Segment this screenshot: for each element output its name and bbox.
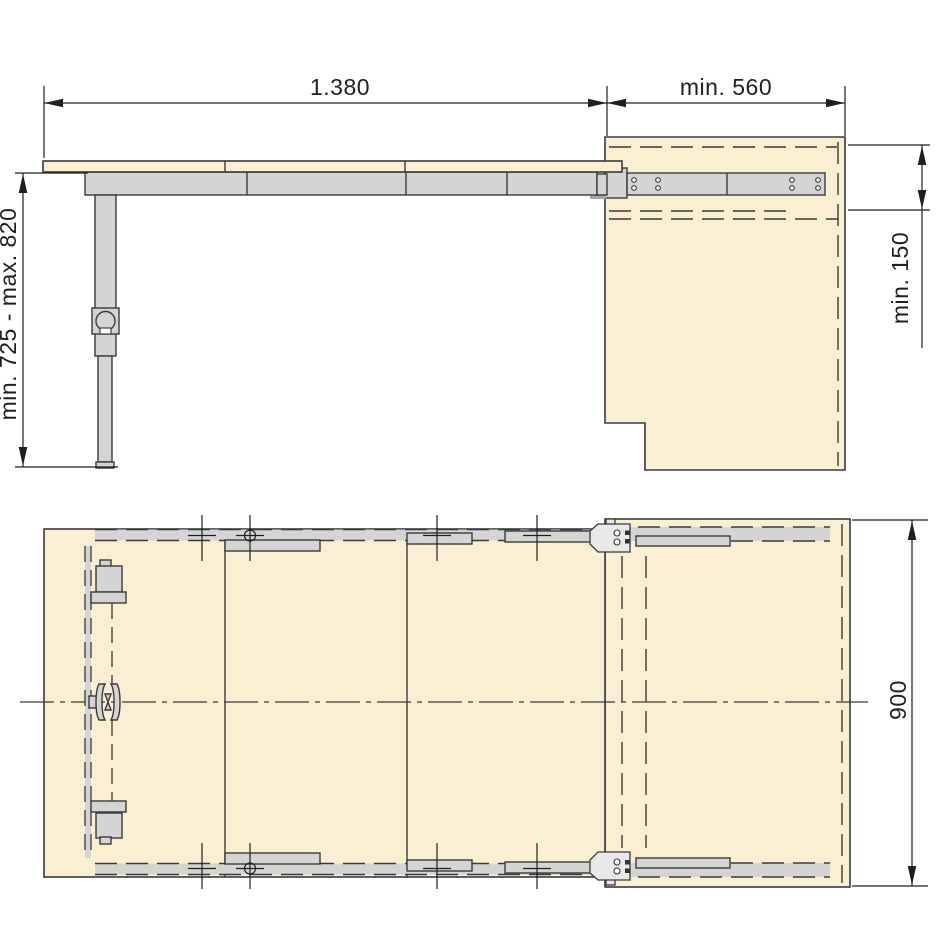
dimension-table-depth: 900 [852, 520, 928, 886]
cabinet-mounted-rail [605, 168, 825, 198]
technical-drawing-page: 1.380 min. 560 min. 725 - max. 820 min. … [0, 0, 940, 940]
rail-front-bracket-plan-bottom [590, 852, 630, 880]
dim-label-cabinet-depth: min. 560 [680, 74, 772, 100]
cabinet-plan [605, 519, 850, 887]
dim-label-rail-zone-height: min. 150 [887, 232, 913, 324]
rail-front-bracket-plan [590, 524, 630, 552]
tabletop-plan [44, 529, 605, 877]
dimension-cabinet-depth: min. 560 [607, 74, 845, 136]
dim-label-height-range: min. 725 - max. 820 [0, 208, 21, 421]
dim-label-table-depth: 900 [885, 680, 911, 720]
side-view: 1.380 min. 560 min. 725 - max. 820 min. … [0, 74, 930, 470]
dimension-pull-out-length: 1.380 [44, 74, 607, 158]
cabinet-side-view [605, 137, 845, 470]
table-leg-side-view [92, 195, 119, 468]
leg-mount-top [96, 566, 122, 592]
leg-mount-bottom [96, 813, 122, 838]
leg-lower-column [98, 356, 112, 462]
dim-label-pull-out-length: 1.380 [310, 74, 370, 100]
telescopic-frame [85, 172, 607, 195]
plan-view: 900 [20, 515, 928, 889]
pullout-table-drawing: 1.380 min. 560 min. 725 - max. 820 min. … [0, 0, 940, 940]
table-side-view [43, 161, 622, 199]
tabletop-side [43, 161, 622, 172]
dimension-rail-zone-height: min. 150 [848, 145, 930, 348]
